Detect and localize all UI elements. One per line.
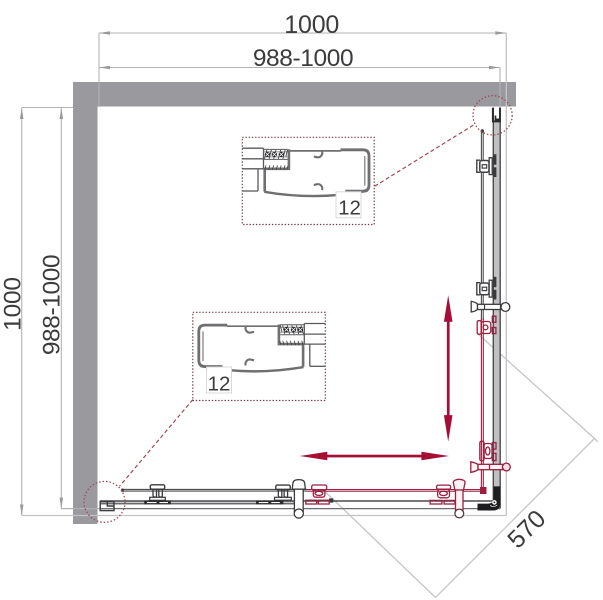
svg-text:988-1000: 988-1000 — [39, 255, 66, 355]
svg-text:1000: 1000 — [284, 11, 339, 39]
svg-text:12: 12 — [208, 373, 231, 396]
svg-text:988-1000: 988-1000 — [253, 45, 353, 72]
svg-text:12: 12 — [338, 197, 361, 220]
svg-text:1000: 1000 — [0, 277, 27, 331]
